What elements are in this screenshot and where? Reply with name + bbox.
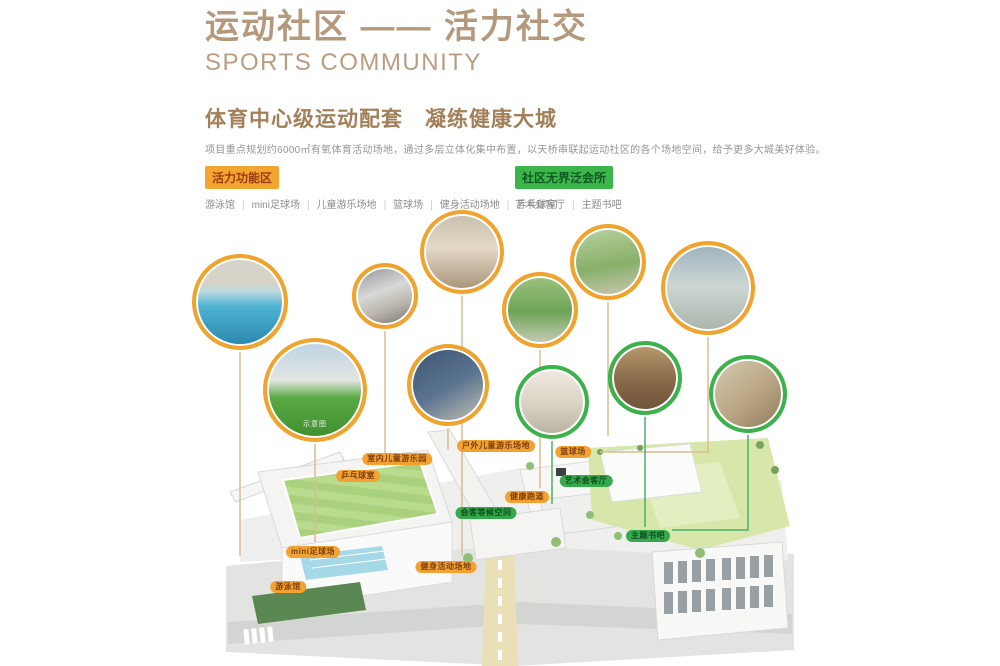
legend-item: 健身活动场地 [440,200,500,211]
legend-item: 主题书吧 [582,200,622,211]
site-plan-illustration [0,0,1000,666]
item-separator: | [572,200,575,211]
section-heading: 体育中心级运动配套 凝练健康大城 [205,103,845,133]
legend-item: 儿童游乐场地 [317,200,377,211]
plan-tag: 室内儿童游乐园 [362,453,432,465]
item-separator: | [384,200,387,211]
legend-item: 篮球场 [393,200,423,211]
vitality-badge: 活力功能区 [205,166,279,189]
brochure-page: 运动社区 —— 活力社交 SPORTS COMMUNITY 体育中心级运动配套 … [0,0,1000,666]
page-subtitle: SPORTS COMMUNITY [205,49,588,77]
plan-tag: 篮球场 [555,446,591,458]
plan-tag: 主题书吧 [626,530,670,542]
item-separator: | [430,200,433,211]
garden-path-photo [502,272,578,348]
intro-section: 体育中心级运动配套 凝练健康大城 项目重点规划约6000㎡有氧体育活动场地，通过… [205,103,845,156]
item-separator: | [242,200,245,211]
kids-climbing-room-photo [407,344,489,426]
plan-tag: mini足球场 [286,546,340,558]
plan-tag: 健康跑道 [505,491,549,503]
legend-item: 艺术会客厅 [515,200,565,211]
football-field-photo: 示意图 [263,338,367,442]
vitality-items: 游泳馆|mini足球场|儿童游乐场地|篮球场|健身活动场地|乒乓球室 [205,196,556,211]
clubhouse-badge: 社区无界泛会所 [515,166,613,189]
corridor-photo [352,263,418,329]
header: 运动社区 —— 活力社交 SPORTS COMMUNITY [205,8,588,77]
plan-tag: 户外儿童游乐场地 [457,440,535,452]
plan-tag: 游泳馆 [270,581,306,593]
item-separator: | [507,200,510,211]
item-separator: | [307,200,310,211]
photo-caption: 示意图 [267,419,363,429]
legend-item: mini足球场 [252,200,300,211]
jogging-street-photo [570,224,646,300]
reading-room-photo [709,355,787,433]
art-lounge-photo [515,365,589,439]
plan-residential-building [652,542,788,640]
fitness-room-photo [420,210,504,294]
clubhouse-items: 艺术会客厅|主题书吧 [515,196,622,211]
plan-tag: 健身活动场地 [416,561,477,573]
indoor-pool-photo [192,254,288,350]
plan-tag: 会客等候空间 [456,507,517,519]
plan-tag: 艺术会客厅 [560,475,613,487]
legend-group-vitality: 活力功能区 游泳馆|mini足球场|儿童游乐场地|篮球场|健身活动场地|乒乓球室 [205,166,556,211]
plan-tag: 乒乓球室 [336,470,380,482]
legend-item: 游泳馆 [205,200,235,211]
community-street-photo [661,241,755,335]
page-title: 运动社区 —— 活力社交 [205,8,588,47]
legend-group-clubhouse: 社区无界泛会所 艺术会客厅|主题书吧 [515,166,622,211]
dining-hall-photo [608,341,682,415]
intro-paragraph: 项目重点规划约6000㎡有氧体育活动场地，通过多层立体化集中布置，以天桥串联起运… [205,141,845,156]
